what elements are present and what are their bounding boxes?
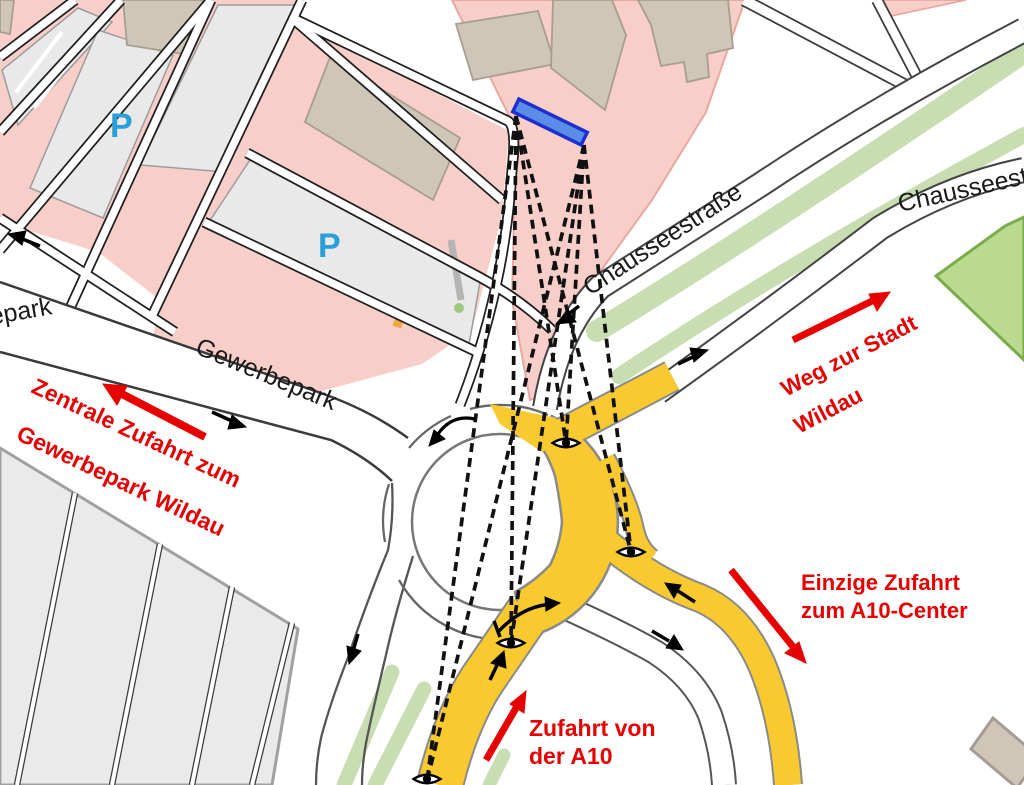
svg-text:zum A10-Center: zum A10-Center: [801, 598, 968, 623]
svg-text:Zufahrt von: Zufahrt von: [529, 715, 656, 741]
svg-text:Einzige Zufahrt: Einzige Zufahrt: [801, 570, 961, 595]
svg-text:P: P: [110, 107, 133, 145]
svg-text:P: P: [318, 227, 341, 265]
svg-text:der A10: der A10: [529, 743, 613, 769]
